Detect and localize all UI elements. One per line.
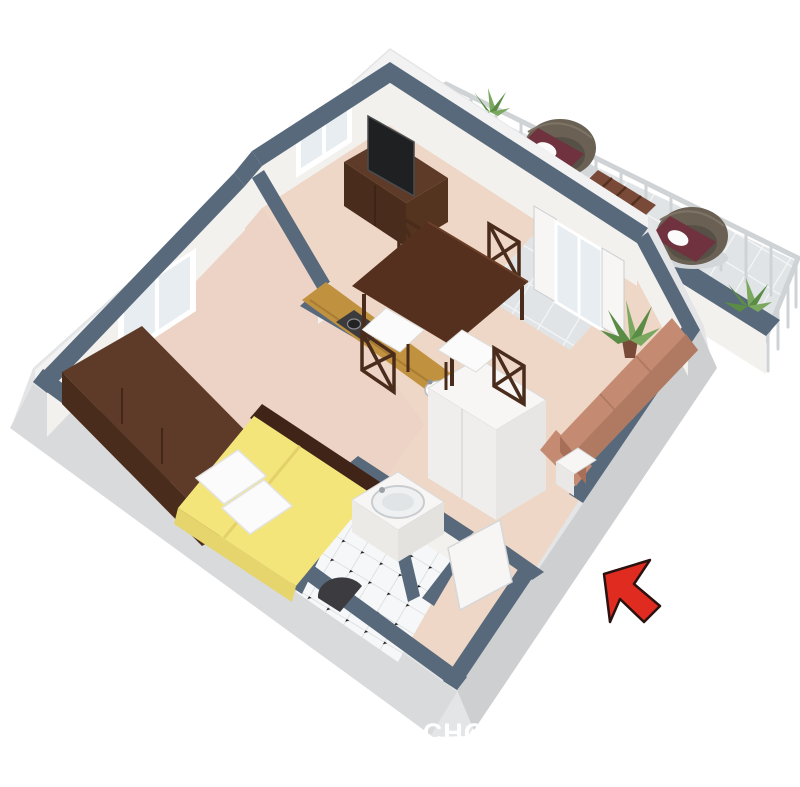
vestibule-pillar <box>534 206 556 302</box>
floorplan-svg: OVANIvCHO <box>0 0 800 787</box>
vestibule-pillar <box>602 248 624 340</box>
faucet <box>379 487 385 493</box>
entrance-arrow-icon <box>604 560 660 622</box>
floorplan-canvas: OVANIvCHO <box>0 0 800 787</box>
watermark-text: OVANIvCHO <box>318 718 486 748</box>
